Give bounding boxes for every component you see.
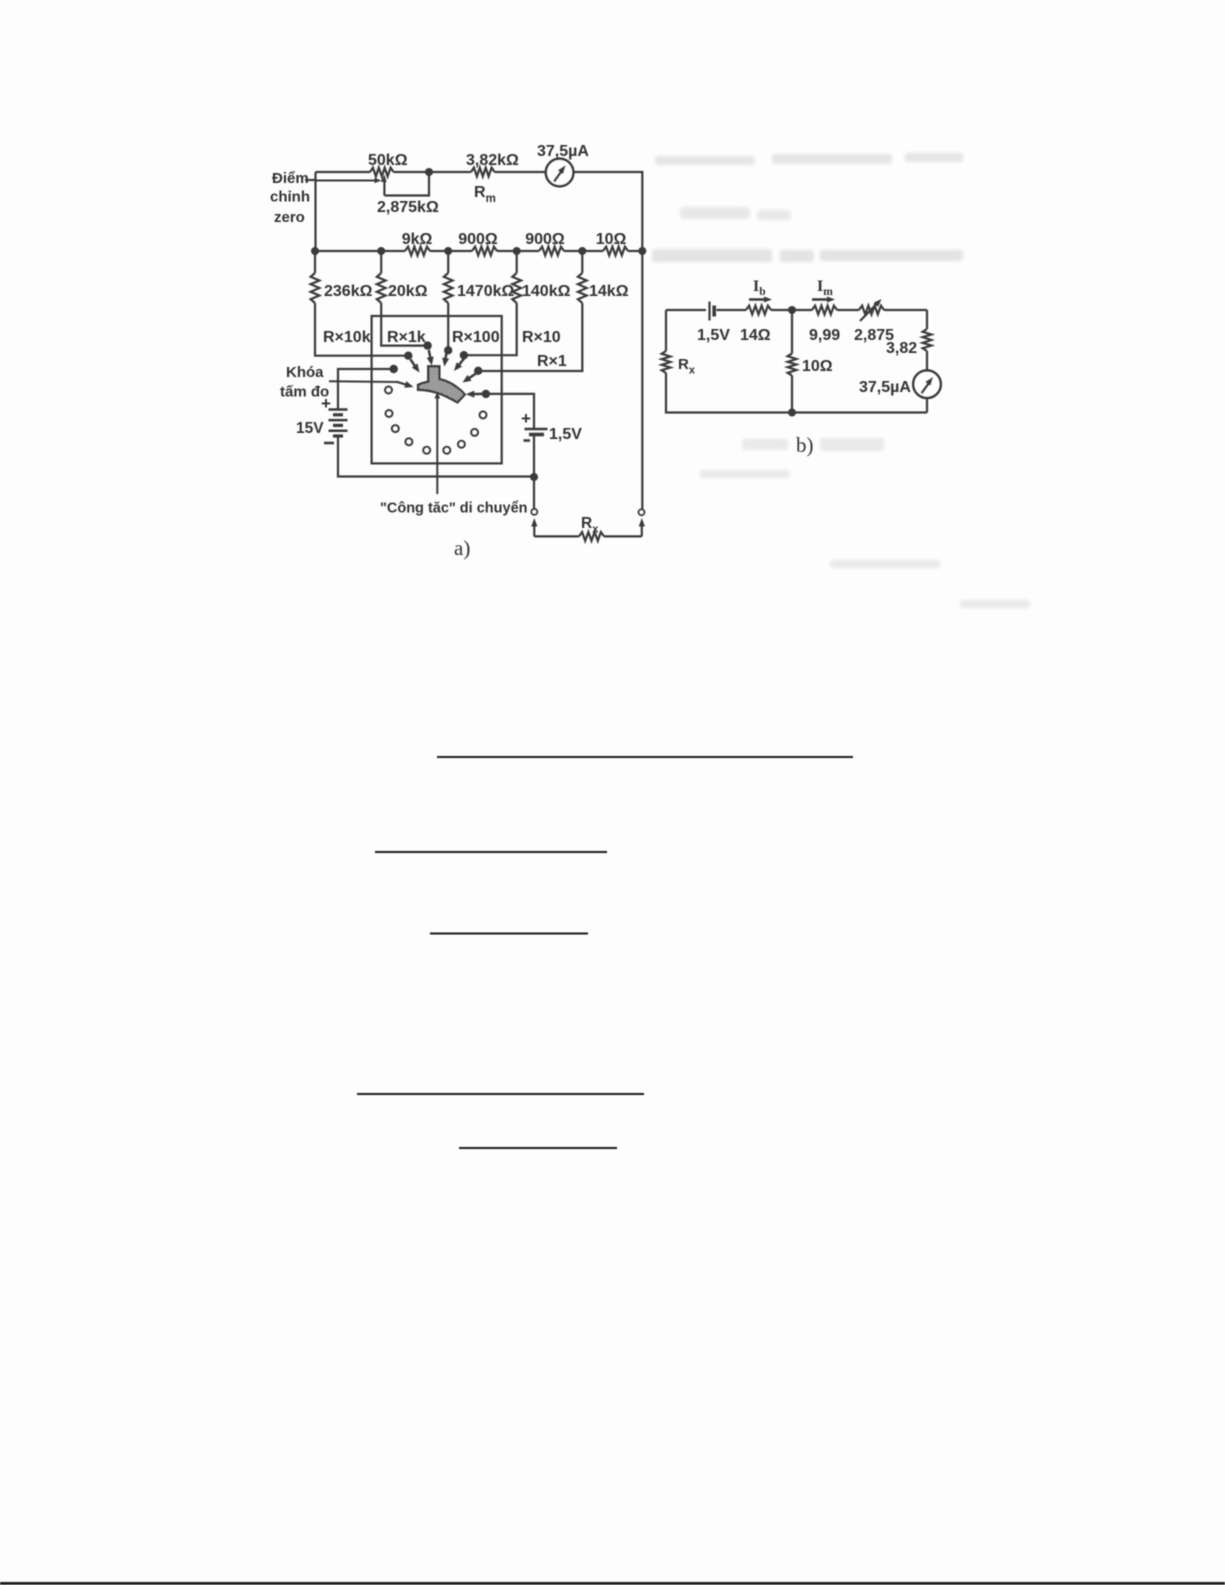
svg-text:R×10: R×10 xyxy=(522,329,561,346)
svg-text:10Ω: 10Ω xyxy=(596,231,627,248)
svg-text:+: + xyxy=(521,409,531,428)
svg-text:zero: zero xyxy=(274,209,305,226)
svg-text:236kΩ: 236kΩ xyxy=(324,283,373,300)
svg-text:15V: 15V xyxy=(296,420,324,437)
svg-text:a): a) xyxy=(454,536,470,560)
svg-text:+: + xyxy=(321,394,331,413)
svg-text:20kΩ: 20kΩ xyxy=(388,283,428,300)
svg-text:R×10k: R×10k xyxy=(323,329,371,346)
svg-text:Khóa: Khóa xyxy=(286,364,324,381)
svg-text:140kΩ: 140kΩ xyxy=(522,283,571,300)
svg-text:1,5V: 1,5V xyxy=(549,426,582,443)
svg-text:9kΩ: 9kΩ xyxy=(402,231,433,248)
svg-text:3,82: 3,82 xyxy=(886,340,917,357)
svg-text:900Ω: 900Ω xyxy=(525,231,565,248)
svg-text:37,5µA: 37,5µA xyxy=(859,379,911,396)
svg-text:1,5V: 1,5V xyxy=(697,327,730,344)
svg-text:Điểm: Điểm xyxy=(272,170,309,187)
svg-text:50kΩ: 50kΩ xyxy=(368,152,408,169)
svg-text:2,875kΩ: 2,875kΩ xyxy=(377,199,439,216)
svg-text:chỉnh: chỉnh xyxy=(270,189,310,206)
svg-text:900Ω: 900Ω xyxy=(458,231,498,248)
svg-text:14Ω: 14Ω xyxy=(740,327,771,344)
svg-text:R×1: R×1 xyxy=(537,353,567,370)
svg-text:R×100: R×100 xyxy=(452,329,500,346)
svg-text:14kΩ: 14kΩ xyxy=(589,283,629,300)
svg-text:37,5µA: 37,5µA xyxy=(537,143,589,160)
svg-text:9,99: 9,99 xyxy=(809,327,840,344)
svg-text:1470kΩ: 1470kΩ xyxy=(457,283,514,300)
svg-text:b): b) xyxy=(796,433,814,457)
svg-text:R×1k: R×1k xyxy=(387,329,426,346)
svg-text:"Công tăc" di chuyển: "Công tăc" di chuyển xyxy=(380,501,528,517)
svg-text:10Ω: 10Ω xyxy=(802,358,833,375)
svg-text:3,82kΩ: 3,82kΩ xyxy=(466,152,519,169)
